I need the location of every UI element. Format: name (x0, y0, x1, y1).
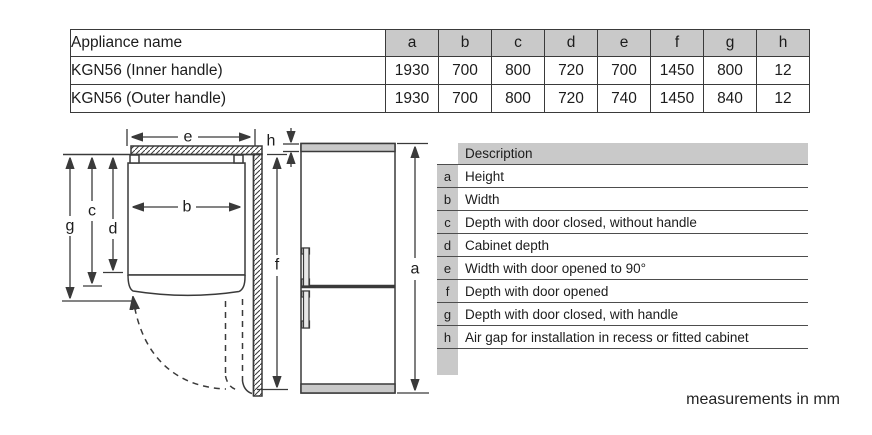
hinge-right (234, 155, 243, 163)
legend-description: Depth with door closed, with handle (458, 303, 808, 325)
dim-label-d: d (109, 221, 118, 238)
legend-key: g (437, 303, 458, 325)
spec-sheet: Appliance name a b c d e f g h KGN56 (In… (0, 0, 872, 435)
legend-key-column-extension (437, 349, 458, 375)
hinge-left (130, 155, 139, 163)
dim-h: h (267, 128, 299, 167)
wall-hatch-right (254, 154, 263, 396)
dim-label-f: f (275, 257, 280, 274)
door-open-bottom (226, 376, 239, 390)
dim-label-h: h (267, 133, 276, 150)
legend-description: Depth with door closed, without handle (458, 211, 808, 233)
legend-header-row: Description (437, 143, 808, 165)
legend-key: b (437, 188, 458, 210)
legend-key: h (437, 326, 458, 348)
legend-key: e (437, 257, 458, 279)
dim-a: a (397, 144, 429, 394)
fridge-top-strip (301, 144, 395, 152)
legend-row-c: c Depth with door closed, without handle (437, 211, 808, 234)
dim-e: e (127, 129, 255, 147)
top-view (63, 146, 262, 396)
legend-row-e: e Width with door opened to 90° (437, 257, 808, 280)
legend-row-f: f Depth with door opened (437, 280, 808, 303)
dim-g: g (62, 158, 133, 301)
measurement-unit-note: measurements in mm (600, 391, 840, 409)
legend-table: Description a Height b Width c Depth wit… (437, 143, 808, 375)
legend-row-d: d Cabinet depth (437, 234, 808, 257)
wall-hatch-top (131, 146, 262, 155)
legend-description: Cabinet depth (458, 234, 808, 256)
legend-header-label: Description (458, 143, 808, 164)
legend-row-b: b Width (437, 188, 808, 211)
legend-row-a: a Height (437, 165, 808, 188)
dim-c: c (83, 158, 102, 286)
legend-row-h: h Air gap for installation in recess or … (437, 326, 808, 349)
legend-description: Width (458, 188, 808, 210)
legend-key: f (437, 280, 458, 302)
door-open-corner (243, 381, 253, 394)
dim-label-c: c (88, 203, 96, 220)
legend-key: a (437, 165, 458, 187)
door-closed (128, 275, 245, 295)
legend-header-spacer (437, 143, 458, 164)
cabinet-top-view (128, 163, 245, 275)
dim-label-a: a (411, 261, 420, 278)
legend-key: d (437, 234, 458, 256)
legend-description: Height (458, 165, 808, 187)
legend-key: c (437, 211, 458, 233)
legend-description: Depth with door opened (458, 280, 808, 302)
legend-description: Air gap for installation in recess or fi… (458, 326, 808, 348)
legend-row-g: g Depth with door closed, with handle (437, 303, 808, 326)
fridge-body (301, 144, 395, 394)
dim-label-g: g (66, 218, 75, 235)
front-view (301, 144, 395, 394)
dim-label-b: b (183, 199, 192, 216)
fridge-plinth (301, 384, 395, 393)
dim-d: d (103, 158, 123, 273)
door-swing-arc (133, 297, 226, 389)
dim-label-e: e (184, 129, 193, 146)
legend-description: Width with door opened to 90° (458, 257, 808, 279)
